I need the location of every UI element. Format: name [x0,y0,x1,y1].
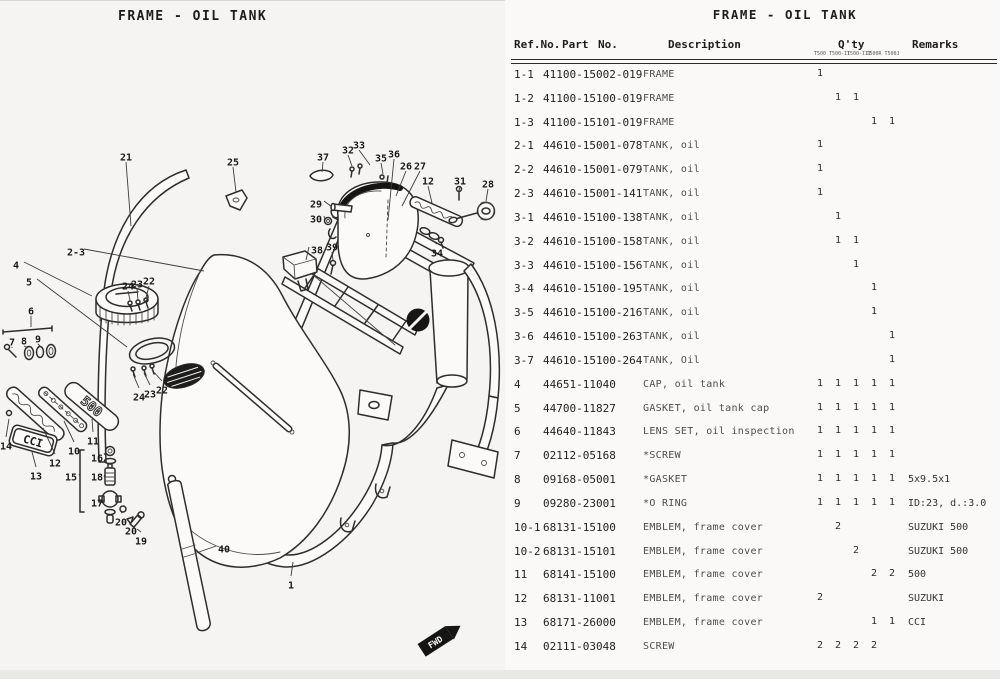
callout-label: 13 [30,472,42,483]
callout-label: 7 [9,338,15,349]
qty-cell: 2 [829,521,847,532]
emblem-500-plate: 500 [62,379,122,433]
table-row: 1402111-03048SCREW2222 [505,640,1000,662]
description-cell: TANK, oil [643,212,700,223]
screw-set-lower [131,364,154,377]
qty-cell: 2 [847,545,865,556]
model-column-label: T500 [811,51,829,57]
qty-cell: 1 [811,473,829,484]
screw-39-part [331,261,336,275]
callout-label: 21 [120,153,132,164]
table-row: 3-644610-15100-263TANK, oil1 [505,330,1000,352]
table-row: 1-241100-15100-019FRAME11 [505,92,1000,114]
part-number-cell: 44610-15100-158 [543,235,642,248]
qty-cell: 1 [829,473,847,484]
part-number-cell: 41100-15101-019 [543,116,642,129]
qty-cell: 1 [829,497,847,508]
callout-leader-line [24,262,92,296]
callout-label: 27 [414,162,426,173]
ref-no-cell: 3-2 [514,235,534,248]
description-cell: EMBLEM, frame cover [643,593,763,604]
small-screws [350,164,388,183]
callout-label: 4 [13,261,19,272]
table-row: 1368171-26000EMBLEM, frame cover11CCI [505,616,1000,638]
part-number-cell: 44610-15100-264 [543,354,642,367]
callout-label: 22 [143,277,155,288]
table-row: 644640-11843LENS SET, oil inspection1111… [505,425,1000,447]
qty-cell: 1 [811,163,829,174]
qty-cell: 1 [847,449,865,460]
callout-leader-line [359,150,370,165]
callout-label: 10 [68,447,80,458]
header-remarks: Remarks [912,38,958,51]
parts-table-rows: 1-141100-15002-019FRAME11-241100-15100-0… [505,68,1000,673]
plate-37-part [310,170,333,181]
qty-cell: 1 [865,473,883,484]
callout-label: 8 [21,337,27,348]
ref-no-cell: 3-7 [514,354,534,367]
callout-leader-line [84,249,204,271]
qty-cell: 1 [865,425,883,436]
qty-cell: 1 [865,449,883,460]
description-cell: GASKET, oil tank cap [643,403,769,414]
callout-label: 26 [400,162,412,173]
frame-cover-right [329,182,419,279]
qty-cell: 1 [883,402,901,413]
callout-leader-line [6,419,9,437]
part-number-cell: 68131-11001 [543,592,616,605]
part-number-cell: 68141-15100 [543,568,616,581]
callout-label: 29 [310,200,322,211]
qty-cell: 1 [847,378,865,389]
qty-cell: 1 [811,425,829,436]
ref-no-cell: 4 [514,378,521,391]
qty-cell: 1 [811,402,829,413]
part-number-cell: 44610-15100-263 [543,330,642,343]
description-cell: EMBLEM, frame cover [643,617,763,628]
frame-rear-bracket [448,440,498,478]
description-cell: FRAME [643,117,675,128]
description-cell: TANK, oil [643,236,700,247]
part-number-cell: 41100-15100-019 [543,92,642,105]
callout-label: 22 [156,386,168,397]
callout-label: 31 [454,177,466,188]
callout-leader-line [32,452,36,467]
qty-cell: 1 [847,497,865,508]
qty-cell: 1 [883,330,901,341]
callout-label: 30 [310,215,322,226]
tap-assembly-parts [80,447,145,528]
ref-no-cell: 10-1 [514,521,541,534]
ref-no-cell: 3-4 [514,282,534,295]
part-number-cell: 68171-26000 [543,616,616,629]
table-title: FRAME - OIL TANK [665,7,905,22]
ref-no-cell: 5 [514,402,521,415]
description-cell: TANK, oil [643,164,700,175]
qty-cell: 1 [829,449,847,460]
callout-leader-line [152,370,162,381]
qty-cell: 2 [865,568,883,579]
qty-cell: 1 [811,139,829,150]
ref-no-cell: 2-3 [514,187,534,200]
callout-label: 40 [218,545,230,556]
table-row: 3-144610-15100-138TANK, oil1 [505,211,1000,233]
table-row: 1-341100-15101-019FRAME11 [505,116,1000,138]
qty-cell: 1 [811,68,829,79]
table-row: 1168141-15100EMBLEM, frame cover22500 [505,568,1000,590]
qty-cell: 1 [847,92,865,103]
qty-cell: 1 [829,92,847,103]
qty-cell: 1 [829,425,847,436]
header-part: Part [562,38,589,51]
table-row: 444651-11040CAP, oil tank11111 [505,378,1000,400]
ref-no-cell: 7 [514,449,521,462]
head-bottom-cap [437,375,467,387]
description-cell: TANK, oil [643,188,700,199]
model-columns-header: T500T500-IIT500-IIIT500RT500J [505,51,1000,59]
callout-leader-line [137,529,141,532]
remarks-cell: CCI [908,617,926,628]
table-row: 3-344610-15100-156TANK, oil1 [505,259,1000,281]
remarks-cell: SUZUKI 500 [908,546,968,557]
remarks-cell: 5x9.5x1 [908,474,950,485]
callout-label: 25 [227,158,239,169]
parts-table-panel: FRAME - OIL TANK Ref.No. Part No. Descri… [505,0,1000,679]
remarks-cell: ID:23, d.:3.0 [908,498,986,509]
callout-label: 17 [91,499,103,510]
callout-leader-line [144,373,150,385]
callout-leader-line [486,189,488,201]
qty-cell: 2 [847,640,865,651]
callout-label: 9 [35,335,41,346]
callout-label: 38 [311,246,323,257]
part-number-cell: 02112-05168 [543,449,616,462]
head-top-cap [429,260,469,276]
callout-label: 33 [353,141,365,152]
callout-label: 37 [317,153,329,164]
fwd-badge: FWD [418,619,465,657]
callout-leader-line [428,186,432,203]
description-cell: SCREW [643,641,675,652]
part-number-cell: 44610-15100-156 [543,259,642,272]
callout-leader-line [92,419,93,432]
description-cell: EMBLEM, frame cover [643,569,763,580]
description-cell: TANK, Oil [643,355,700,366]
part-number-cell: 44700-11827 [543,402,616,415]
qty-cell: 1 [865,378,883,389]
table-row: 2-344610-15001-141TANK, oil1 [505,187,1000,209]
description-cell: TANK, oil [643,140,700,151]
frame-rear-tube [464,264,499,398]
qty-cell: 1 [829,235,847,246]
part-number-cell: 68131-15100 [543,521,616,534]
table-row: 909280-23001*O RING11111ID:23, d.:3.0 [505,497,1000,519]
callout-label: 19 [135,537,147,548]
header-qty: Q'ty [838,38,865,51]
callout-label: 5 [26,278,32,289]
callout-label: 35 [375,154,387,165]
qty-cell: 2 [811,640,829,651]
table-row: 702112-05168*SCREW11111 [505,449,1000,471]
callout-label: 23 [131,280,143,291]
callout-leader-line [381,163,383,174]
description-cell: EMBLEM, frame cover [643,546,763,557]
screw-31-part [457,187,462,201]
callout-leader-line [324,201,332,207]
callout-leader-line [233,167,236,192]
qty-cell: 1 [865,116,883,127]
description-cell: *SCREW [643,450,681,461]
qty-cell: 1 [811,187,829,198]
bracket-25-part [226,190,247,210]
ref-no-cell: 6 [514,425,521,438]
table-row: 1268131-11001EMBLEM, frame cover2SUZUKI [505,592,1000,614]
callout-label: 12 [422,177,434,188]
description-cell: LENS SET, oil inspection [643,426,795,437]
ref-no-cell: 10-2 [514,545,541,558]
ref-no-cell: 3-3 [514,259,534,272]
part-number-cell: 44610-15100-138 [543,211,642,224]
qty-cell: 1 [811,449,829,460]
qty-cell: 1 [883,354,901,365]
table-row: 3-244610-15100-158TANK, oil11 [505,235,1000,257]
description-cell: EMBLEM, frame cover [643,522,763,533]
qty-cell: 1 [811,378,829,389]
callout-label: 12 [49,459,61,470]
callout-label: 14 [0,442,12,453]
exploded-parts-diagram: 500 CCI [0,0,505,679]
qty-cell: 1 [883,425,901,436]
header-no: No. [598,38,618,51]
qty-cell: 1 [883,616,901,627]
ref-no-cell: 1-1 [514,68,534,81]
model-column-label: T500J [883,51,901,57]
ref-no-cell: 3-1 [514,211,534,224]
remarks-cell: SUZUKI [908,593,944,604]
part-number-cell: 09280-23001 [543,497,616,510]
table-row: 2-144610-15001-078TANK, oil1 [505,139,1000,161]
qty-cell: 2 [865,640,883,651]
qty-cell: 1 [865,306,883,317]
ref-no-cell: 1-2 [514,92,534,105]
table-row: 10-168131-15100EMBLEM, frame cover2SUZUK… [505,521,1000,543]
part-number-cell: 44651-11040 [543,378,616,391]
qty-cell: 1 [829,378,847,389]
description-cell: FRAME [643,69,675,80]
description-cell: TANK, oil [643,331,700,342]
callout-label: 18 [91,473,103,484]
callout-label: 15 [65,473,77,484]
ref-no-cell: 11 [514,568,527,581]
frame-downtube-front [382,385,448,446]
header-description: Description [668,38,741,51]
qty-cell: 2 [829,640,847,651]
description-cell: *GASKET [643,474,687,485]
table-row: 3-544610-15100-216TANK, oil1 [505,306,1000,328]
description-cell: *O RING [643,498,687,509]
qty-cell: 1 [865,616,883,627]
frame-gusset [358,390,392,420]
remarks-cell: SUZUKI 500 [908,522,968,533]
part-number-cell: 41100-15002-019 [543,68,642,81]
header-rule [511,59,997,64]
ref-no-cell: 9 [514,497,521,510]
ref-no-cell: 12 [514,592,527,605]
ref-no-cell: 14 [514,640,527,653]
model-column-label: T500-II [829,51,847,57]
part-number-cell: 44610-15100-195 [543,282,642,295]
part-number-cell: 44610-15001-078 [543,139,642,152]
callout-label: 36 [388,150,400,161]
qty-cell: 1 [865,282,883,293]
qty-cell: 1 [883,116,901,127]
part-number-cell: 44610-15001-141 [543,187,642,200]
part-number-cell: 44610-15100-216 [543,306,642,319]
diagram-panel: FRAME - OIL TANK [0,0,505,679]
qty-cell: 1 [847,473,865,484]
knob-28-part [448,202,494,223]
table-row: 2-244610-15001-079TANK, oil1 [505,163,1000,185]
qty-cell: 1 [865,402,883,413]
qty-cell: 1 [865,497,883,508]
ref-no-cell: 2-1 [514,139,534,152]
callout-label: 6 [28,307,34,318]
part-number-cell: 02111-03048 [543,640,616,653]
ref-no-cell: 3-6 [514,330,534,343]
qty-cell: 1 [883,473,901,484]
callout-label: 39 [326,243,338,254]
description-cell: FRAME [643,93,675,104]
callout-leader-line [133,374,139,388]
part-number-cell: 44610-15001-079 [543,163,642,176]
table-row: 10-268131-15101EMBLEM, frame cover2SUZUK… [505,545,1000,567]
qty-cell: 2 [811,592,829,603]
qty-cell: 1 [847,235,865,246]
qty-cell: 1 [883,378,901,389]
model-column-label: T500R [865,51,883,57]
part-number-cell: 44640-11843 [543,425,616,438]
part-number-cell: 09168-05001 [543,473,616,486]
model-column-label: T500-III [847,51,865,57]
qty-cell: 1 [847,402,865,413]
description-cell: TANK, oil [643,283,700,294]
callout-leader-line [348,155,352,166]
callout-label: 11 [87,437,99,448]
ref-no-cell: 13 [514,616,527,629]
remarks-cell: 500 [908,569,926,580]
emblem-screw-part [7,411,12,416]
table-row: 544700-11827GASKET, oil tank cap11111 [505,402,1000,424]
steering-head-tube [430,270,468,383]
callout-label: 23 [144,390,156,401]
description-cell: TANK, oil [643,307,700,318]
qty-cell: 1 [847,425,865,436]
qty-cell: 1 [883,497,901,508]
header-ref-no: Ref.No. [514,38,560,51]
description-cell: TANK, oil [643,260,700,271]
callout-label: 2-3 [67,248,85,259]
ref-no-cell: 3-5 [514,306,534,319]
callout-label: 28 [482,180,494,191]
table-row: 3-744610-15100-264TANK, Oil1 [505,354,1000,376]
table-row: 809168-05001*GASKET111115x9.5x1 [505,473,1000,495]
ref-no-cell: 8 [514,473,521,486]
ref-no-cell: 2-2 [514,163,534,176]
callout-label: 16 [91,454,103,465]
qty-cell: 1 [811,497,829,508]
qty-cell: 2 [883,568,901,579]
table-row: 3-444610-15100-195TANK, oil1 [505,282,1000,304]
ring-30-part [325,218,332,225]
qty-cell: 1 [829,402,847,413]
description-cell: CAP, oil tank [643,379,725,390]
table-row: 1-141100-15002-019FRAME1 [505,68,1000,90]
ref-no-cell: 1-3 [514,116,534,129]
qty-cell: 1 [883,449,901,460]
callout-label: 1 [288,581,294,592]
catalog-page: FRAME - OIL TANK [0,0,1000,679]
callout-label: 34 [431,249,443,260]
qty-cell: 1 [829,211,847,222]
qty-cell: 1 [847,259,865,270]
part-number-cell: 68131-15101 [543,545,616,558]
